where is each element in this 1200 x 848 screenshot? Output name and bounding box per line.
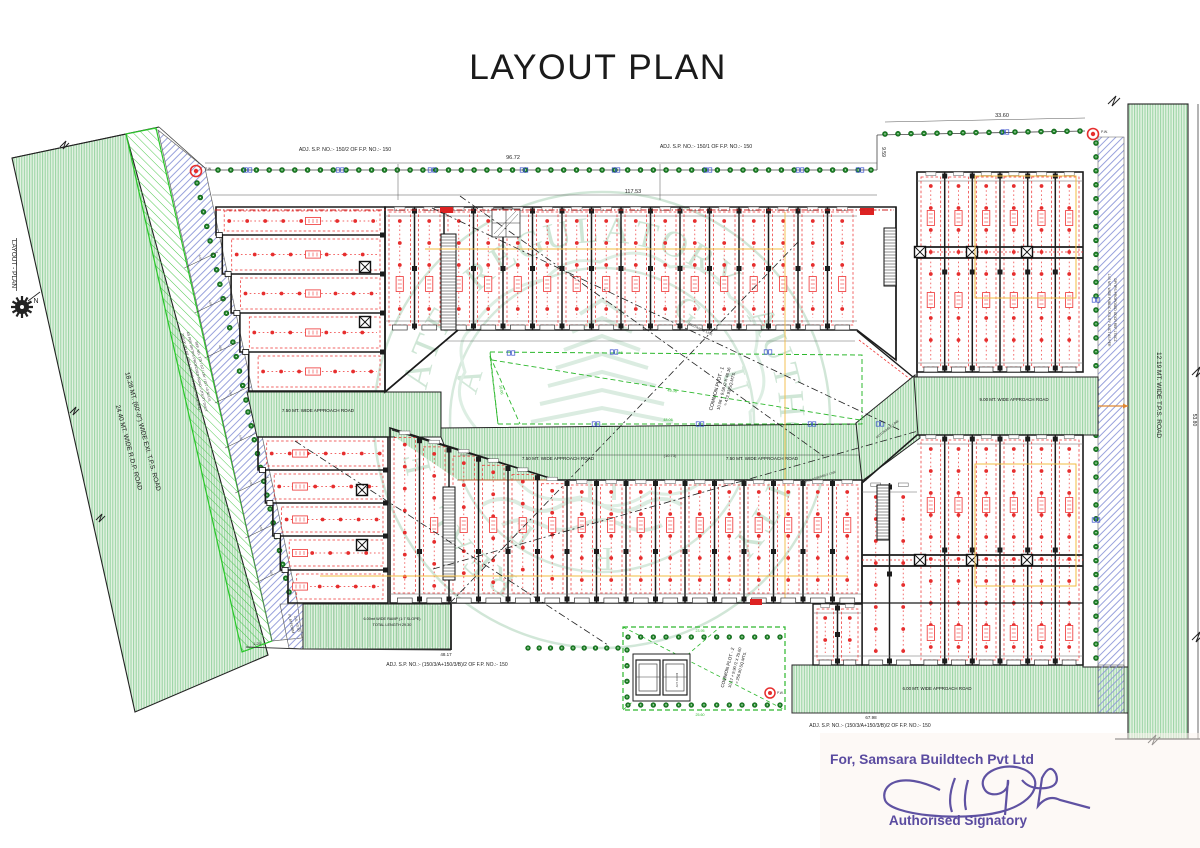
svg-text:ADJ. S.P. NO.:- (150/3/A+150/: ADJ. S.P. NO.:- (150/3/A+150/3/B)/2 OF F… xyxy=(386,662,508,668)
svg-text:DP/TPS PROPOSED GDCR REF 175/C: DP/TPS PROPOSED GDCR REF 175/CZ xyxy=(1113,278,1117,341)
svg-text:7.50 MT. WIDE APPROACH ROAD: 7.50 MT. WIDE APPROACH ROAD xyxy=(282,408,355,413)
svg-text:For, Samsara Buildtech Pvt Lt: For, Samsara Buildtech Pvt Ltd xyxy=(830,752,1034,767)
svg-text:P.W.: P.W. xyxy=(777,691,784,695)
svg-text:1.00 MT. WIDE PUBLIC UTILITY D: 1.00 MT. WIDE PUBLIC UTILITY DUCT AS PER xyxy=(1107,274,1111,348)
svg-text:9.59: 9.59 xyxy=(880,147,886,157)
svg-text:25.60: 25.60 xyxy=(696,713,705,717)
svg-text:53.80: 53.80 xyxy=(1191,414,1197,427)
svg-text:N: N xyxy=(33,298,38,305)
svg-text:48.17: 48.17 xyxy=(440,652,452,657)
svg-text:67.98: 67.98 xyxy=(865,715,877,720)
svg-text:ANT. ROOM: ANT. ROOM xyxy=(675,673,679,687)
svg-text:P.W.: P.W. xyxy=(205,167,212,171)
svg-text:ADJ. S.P. NO.:- 150/1 OF F.P: ADJ. S.P. NO.:- 150/1 OF F.P. NO.:- 150 xyxy=(660,144,752,150)
svg-text:117.53: 117.53 xyxy=(625,189,641,195)
svg-text:ADJ. S.P. NO.:- (150/3/A+150/: ADJ. S.P. NO.:- (150/3/A+150/3/B)/2 OF F… xyxy=(809,723,931,729)
svg-text:33.60: 33.60 xyxy=(995,113,1009,119)
svg-text:48.06: 48.06 xyxy=(663,418,673,422)
svg-text:LAYOUT - PLAN: LAYOUT - PLAN xyxy=(10,240,17,288)
svg-text:H: H xyxy=(769,389,812,419)
svg-text:7.50 MT. WIDE APPROACH ROAD: 7.50 MT. WIDE APPROACH ROAD xyxy=(522,456,595,461)
svg-text:12.19 MT. WIDE T.P.S. ROAD: 12.19 MT. WIDE T.P.S. ROAD xyxy=(1155,352,1162,438)
svg-text:TOTAL LENGTH 29.30: TOTAL LENGTH 29.30 xyxy=(373,623,412,627)
svg-text:1.25: 1.25 xyxy=(253,641,262,646)
svg-text:Authorised Signatory: Authorised Signatory xyxy=(889,813,1028,828)
svg-text:6.00mt WIDE RAMP (1:7 SLOPE): 6.00mt WIDE RAMP (1:7 SLOPE) xyxy=(363,617,421,621)
svg-text:P.W.: P.W. xyxy=(1101,130,1108,134)
svg-text:LAYOUT PLAN: LAYOUT PLAN xyxy=(469,47,727,87)
svg-text:23.95: 23.95 xyxy=(696,629,705,633)
svg-text:ADJ. S.P. NO.:- 150/2 OF F.P: ADJ. S.P. NO.:- 150/2 OF F.P. NO.:- 150 xyxy=(299,147,391,153)
svg-text:9.00 MT. WIDE APPROACH ROAD: 9.00 MT. WIDE APPROACH ROAD xyxy=(979,397,1048,402)
svg-text:96.72: 96.72 xyxy=(506,155,520,161)
svg-text:7.50 MT. WIDE APPROACH ROAD: 7.50 MT. WIDE APPROACH ROAD xyxy=(726,456,799,461)
svg-text:(10.73): (10.73) xyxy=(664,453,677,458)
svg-text:6.00 MT. WIDE APPROACH ROAD: 6.00 MT. WIDE APPROACH ROAD xyxy=(902,686,971,691)
